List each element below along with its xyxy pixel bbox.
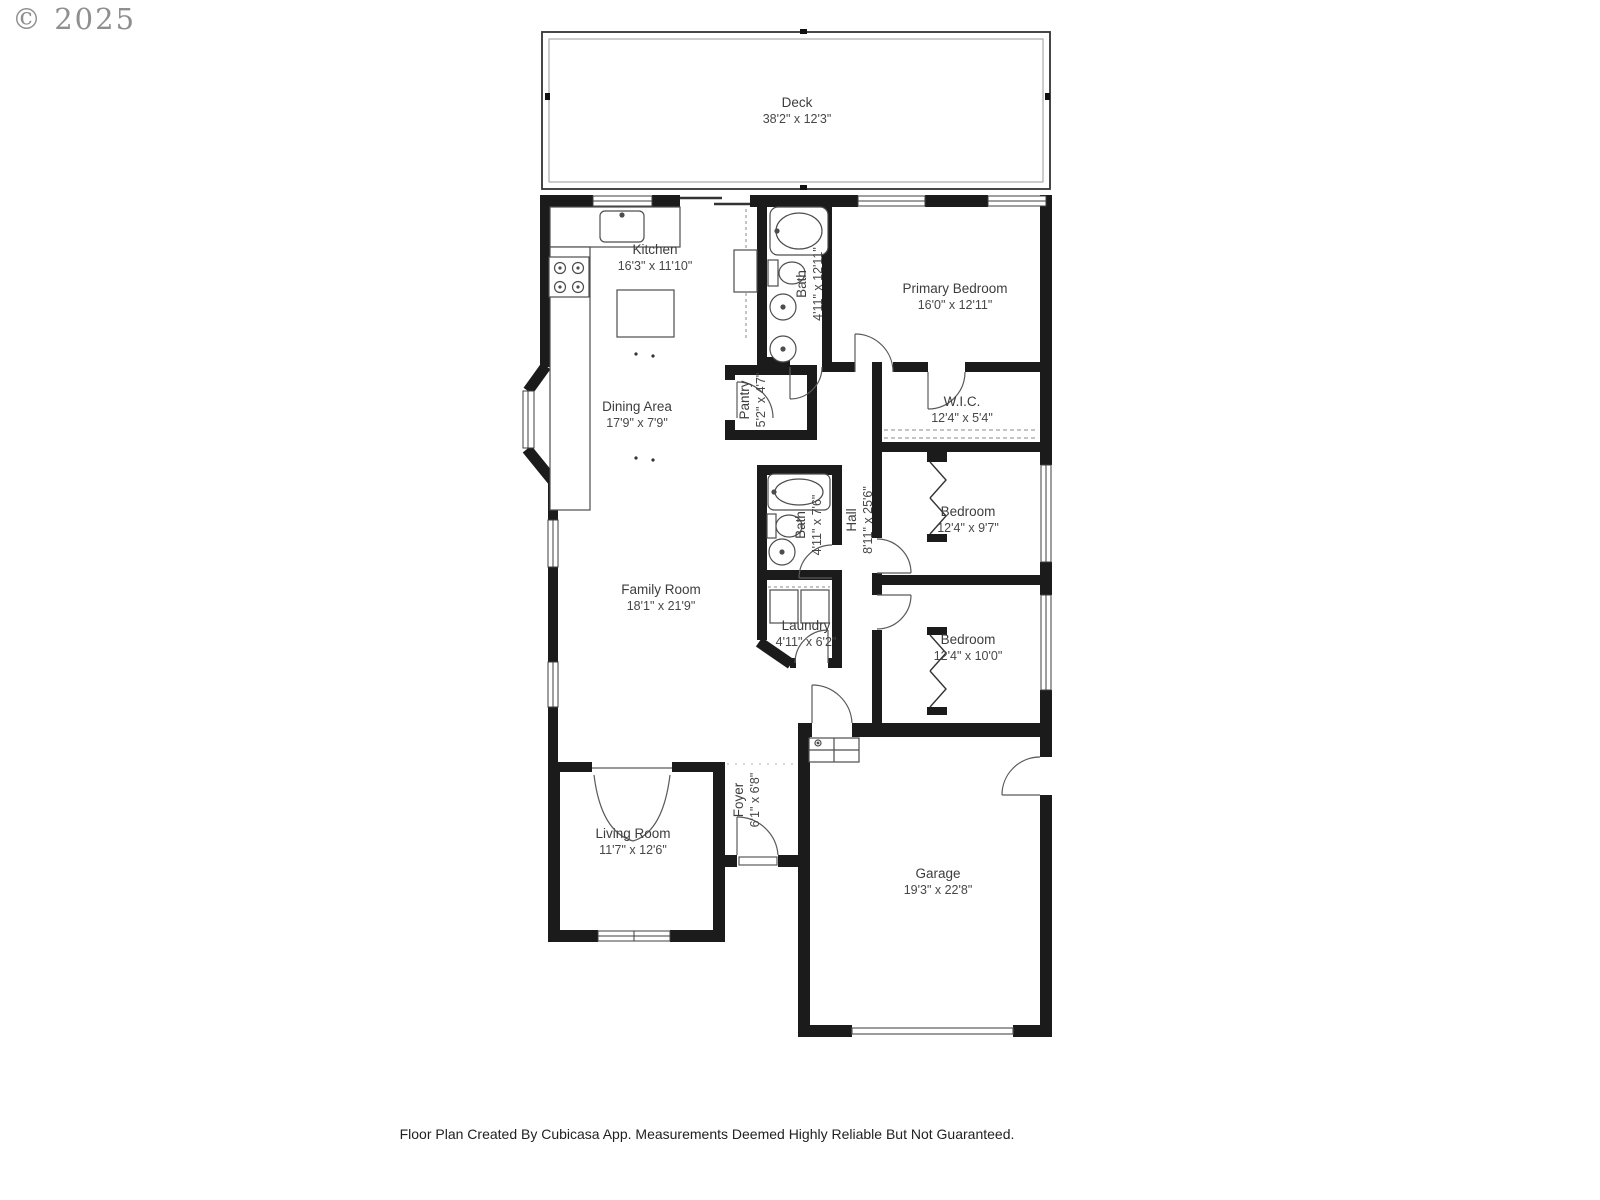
room-label-foyer: Foyer 6'1" x 6'8" <box>730 773 764 828</box>
bedroom-3-window <box>1041 595 1051 690</box>
room-label-family-room: Family Room 18'1" x 21'9" <box>621 581 701 615</box>
room-dims: 19'3" x 22'8" <box>904 882 973 899</box>
primary-bedroom-window <box>858 196 925 206</box>
room-label-primary-bath: Bath 4'11" x 12'11" <box>793 247 827 321</box>
room-label-bedroom-2: Bedroom 12'4" x 9'7" <box>937 503 999 537</box>
room-dims: 8'11" x 25'6" <box>860 486 877 554</box>
room-name: Bath <box>792 495 809 556</box>
room-label-dining-area: Dining Area 17'9" x 7'9" <box>602 398 672 432</box>
primary-bath-sink-2 <box>770 336 796 362</box>
room-dims: 4'11" x 6'2" <box>776 634 837 651</box>
room-name: Dining Area <box>602 398 672 415</box>
room-label-wic: W.I.C. 12'4" x 5'4" <box>931 393 993 427</box>
room-label-hall: Hall 8'11" x 25'6" <box>843 486 877 554</box>
room-dims: 17'9" x 7'9" <box>602 415 672 432</box>
family-room-window-2 <box>548 662 558 707</box>
sliding-door <box>680 198 750 204</box>
room-name: Hall <box>843 486 860 554</box>
room-name: Bath <box>793 247 810 321</box>
room-label-kitchen: Kitchen 16'3" x 11'10" <box>618 241 693 275</box>
room-dims: 12'4" x 5'4" <box>931 410 993 427</box>
floorplan-drawing <box>0 0 1600 1200</box>
family-room-window <box>548 520 558 567</box>
room-dims: 5'2" x 4'7" <box>753 373 770 428</box>
room-label-pantry: Pantry 5'2" x 4'7" <box>736 373 770 428</box>
living-room-window <box>598 931 670 941</box>
room-label-living-room: Living Room 11'7" x 12'6" <box>595 825 670 859</box>
kitchen-window <box>593 196 652 206</box>
room-dims: 12'4" x 9'7" <box>937 520 999 537</box>
floorplan-canvas: © 2025 <box>0 0 1600 1200</box>
room-name: Laundry <box>776 617 837 634</box>
bedroom-2-window <box>1041 465 1051 562</box>
bay-window <box>523 391 534 448</box>
disclaimer-text: Floor Plan Created By Cubicasa App. Meas… <box>0 1126 1414 1142</box>
room-dims: 12'4" x 10'0" <box>934 648 1003 665</box>
room-label-primary-bedroom: Primary Bedroom 16'0" x 12'11" <box>902 280 1007 314</box>
room-dims: 16'3" x 11'10" <box>618 258 693 275</box>
room-label-bedroom-3: Bedroom 12'4" x 10'0" <box>934 631 1003 665</box>
refrigerator <box>734 250 757 292</box>
kitchen-sink <box>600 211 644 242</box>
room-dims: 4'11" x 7'6" <box>809 495 826 556</box>
room-name: Deck <box>763 94 832 111</box>
garage-vehicle-door <box>852 1028 1013 1034</box>
room-dims: 4'11" x 12'11" <box>810 247 827 321</box>
room-dims: 6'1" x 6'8" <box>747 773 764 828</box>
primary-bedroom-window-2 <box>988 196 1046 206</box>
room-label-hall-bath: Bath 4'11" x 7'6" <box>792 495 826 556</box>
stove <box>549 257 589 297</box>
room-name: W.I.C. <box>931 393 993 410</box>
room-label-deck: Deck 38'2" x 12'3" <box>763 94 832 128</box>
room-name: Garage <box>904 865 973 882</box>
bedroom-2-door <box>877 539 911 573</box>
room-name: Kitchen <box>618 241 693 258</box>
room-dims: 18'1" x 21'9" <box>621 598 701 615</box>
room-dims: 11'7" x 12'6" <box>595 842 670 859</box>
room-name: Bedroom <box>937 503 999 520</box>
room-name: Living Room <box>595 825 670 842</box>
room-dims: 16'0" x 12'11" <box>902 297 1007 314</box>
garage-side-door <box>1002 757 1040 795</box>
room-name: Foyer <box>730 773 747 828</box>
water-heater <box>809 738 859 762</box>
garage-house-door <box>812 685 852 723</box>
room-label-laundry: Laundry 4'11" x 6'2" <box>776 617 837 651</box>
room-name: Pantry <box>736 373 753 428</box>
kitchen-island <box>617 290 674 337</box>
room-label-garage: Garage 19'3" x 22'8" <box>904 865 973 899</box>
room-name: Family Room <box>621 581 701 598</box>
room-dims: 38'2" x 12'3" <box>763 111 832 128</box>
bedroom-3-door <box>877 595 911 629</box>
room-name: Primary Bedroom <box>902 280 1007 297</box>
room-name: Bedroom <box>934 631 1003 648</box>
